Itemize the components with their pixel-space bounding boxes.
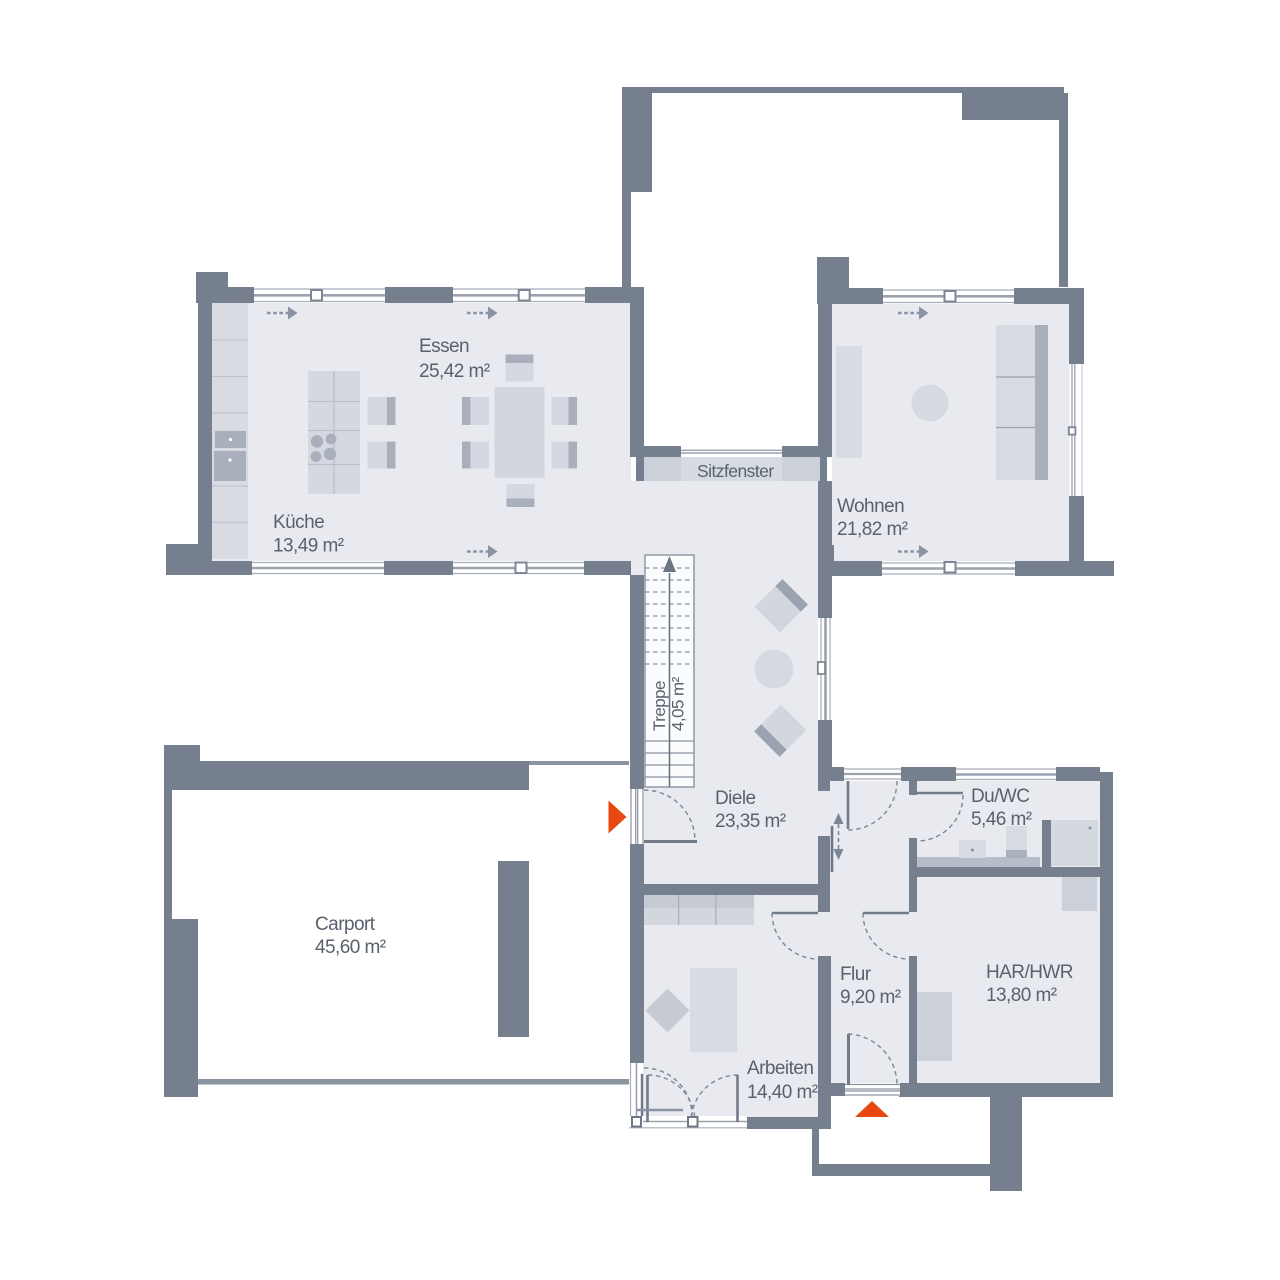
svg-text:21,82 m²: 21,82 m² (837, 519, 908, 540)
svg-text:Arbeiten: Arbeiten (747, 1058, 813, 1079)
svg-text:Wohnen: Wohnen (837, 496, 904, 517)
svg-text:Sitzfenster: Sitzfenster (697, 461, 774, 481)
svg-text:23,35 m²: 23,35 m² (715, 811, 786, 832)
svg-text:Küche: Küche (273, 512, 324, 533)
svg-text:5,46 m²: 5,46 m² (971, 809, 1032, 830)
svg-text:13,80 m²: 13,80 m² (986, 985, 1057, 1006)
svg-text:HAR/HWR: HAR/HWR (986, 962, 1073, 983)
svg-text:Carport: Carport (315, 914, 376, 935)
svg-text:Treppe: Treppe (650, 681, 669, 731)
svg-text:Diele: Diele (715, 788, 756, 809)
svg-text:Flur: Flur (840, 964, 872, 985)
svg-text:Du/WC: Du/WC (971, 786, 1029, 807)
svg-text:45,60 m²: 45,60 m² (315, 937, 386, 958)
svg-text:14,40 m²: 14,40 m² (747, 1082, 818, 1103)
svg-text:4,05 m²: 4,05 m² (669, 676, 688, 731)
svg-text:9,20 m²: 9,20 m² (840, 987, 901, 1008)
svg-text:Essen: Essen (419, 336, 469, 357)
svg-text:13,49 m²: 13,49 m² (273, 536, 344, 557)
svg-text:25,42 m²: 25,42 m² (419, 361, 490, 382)
